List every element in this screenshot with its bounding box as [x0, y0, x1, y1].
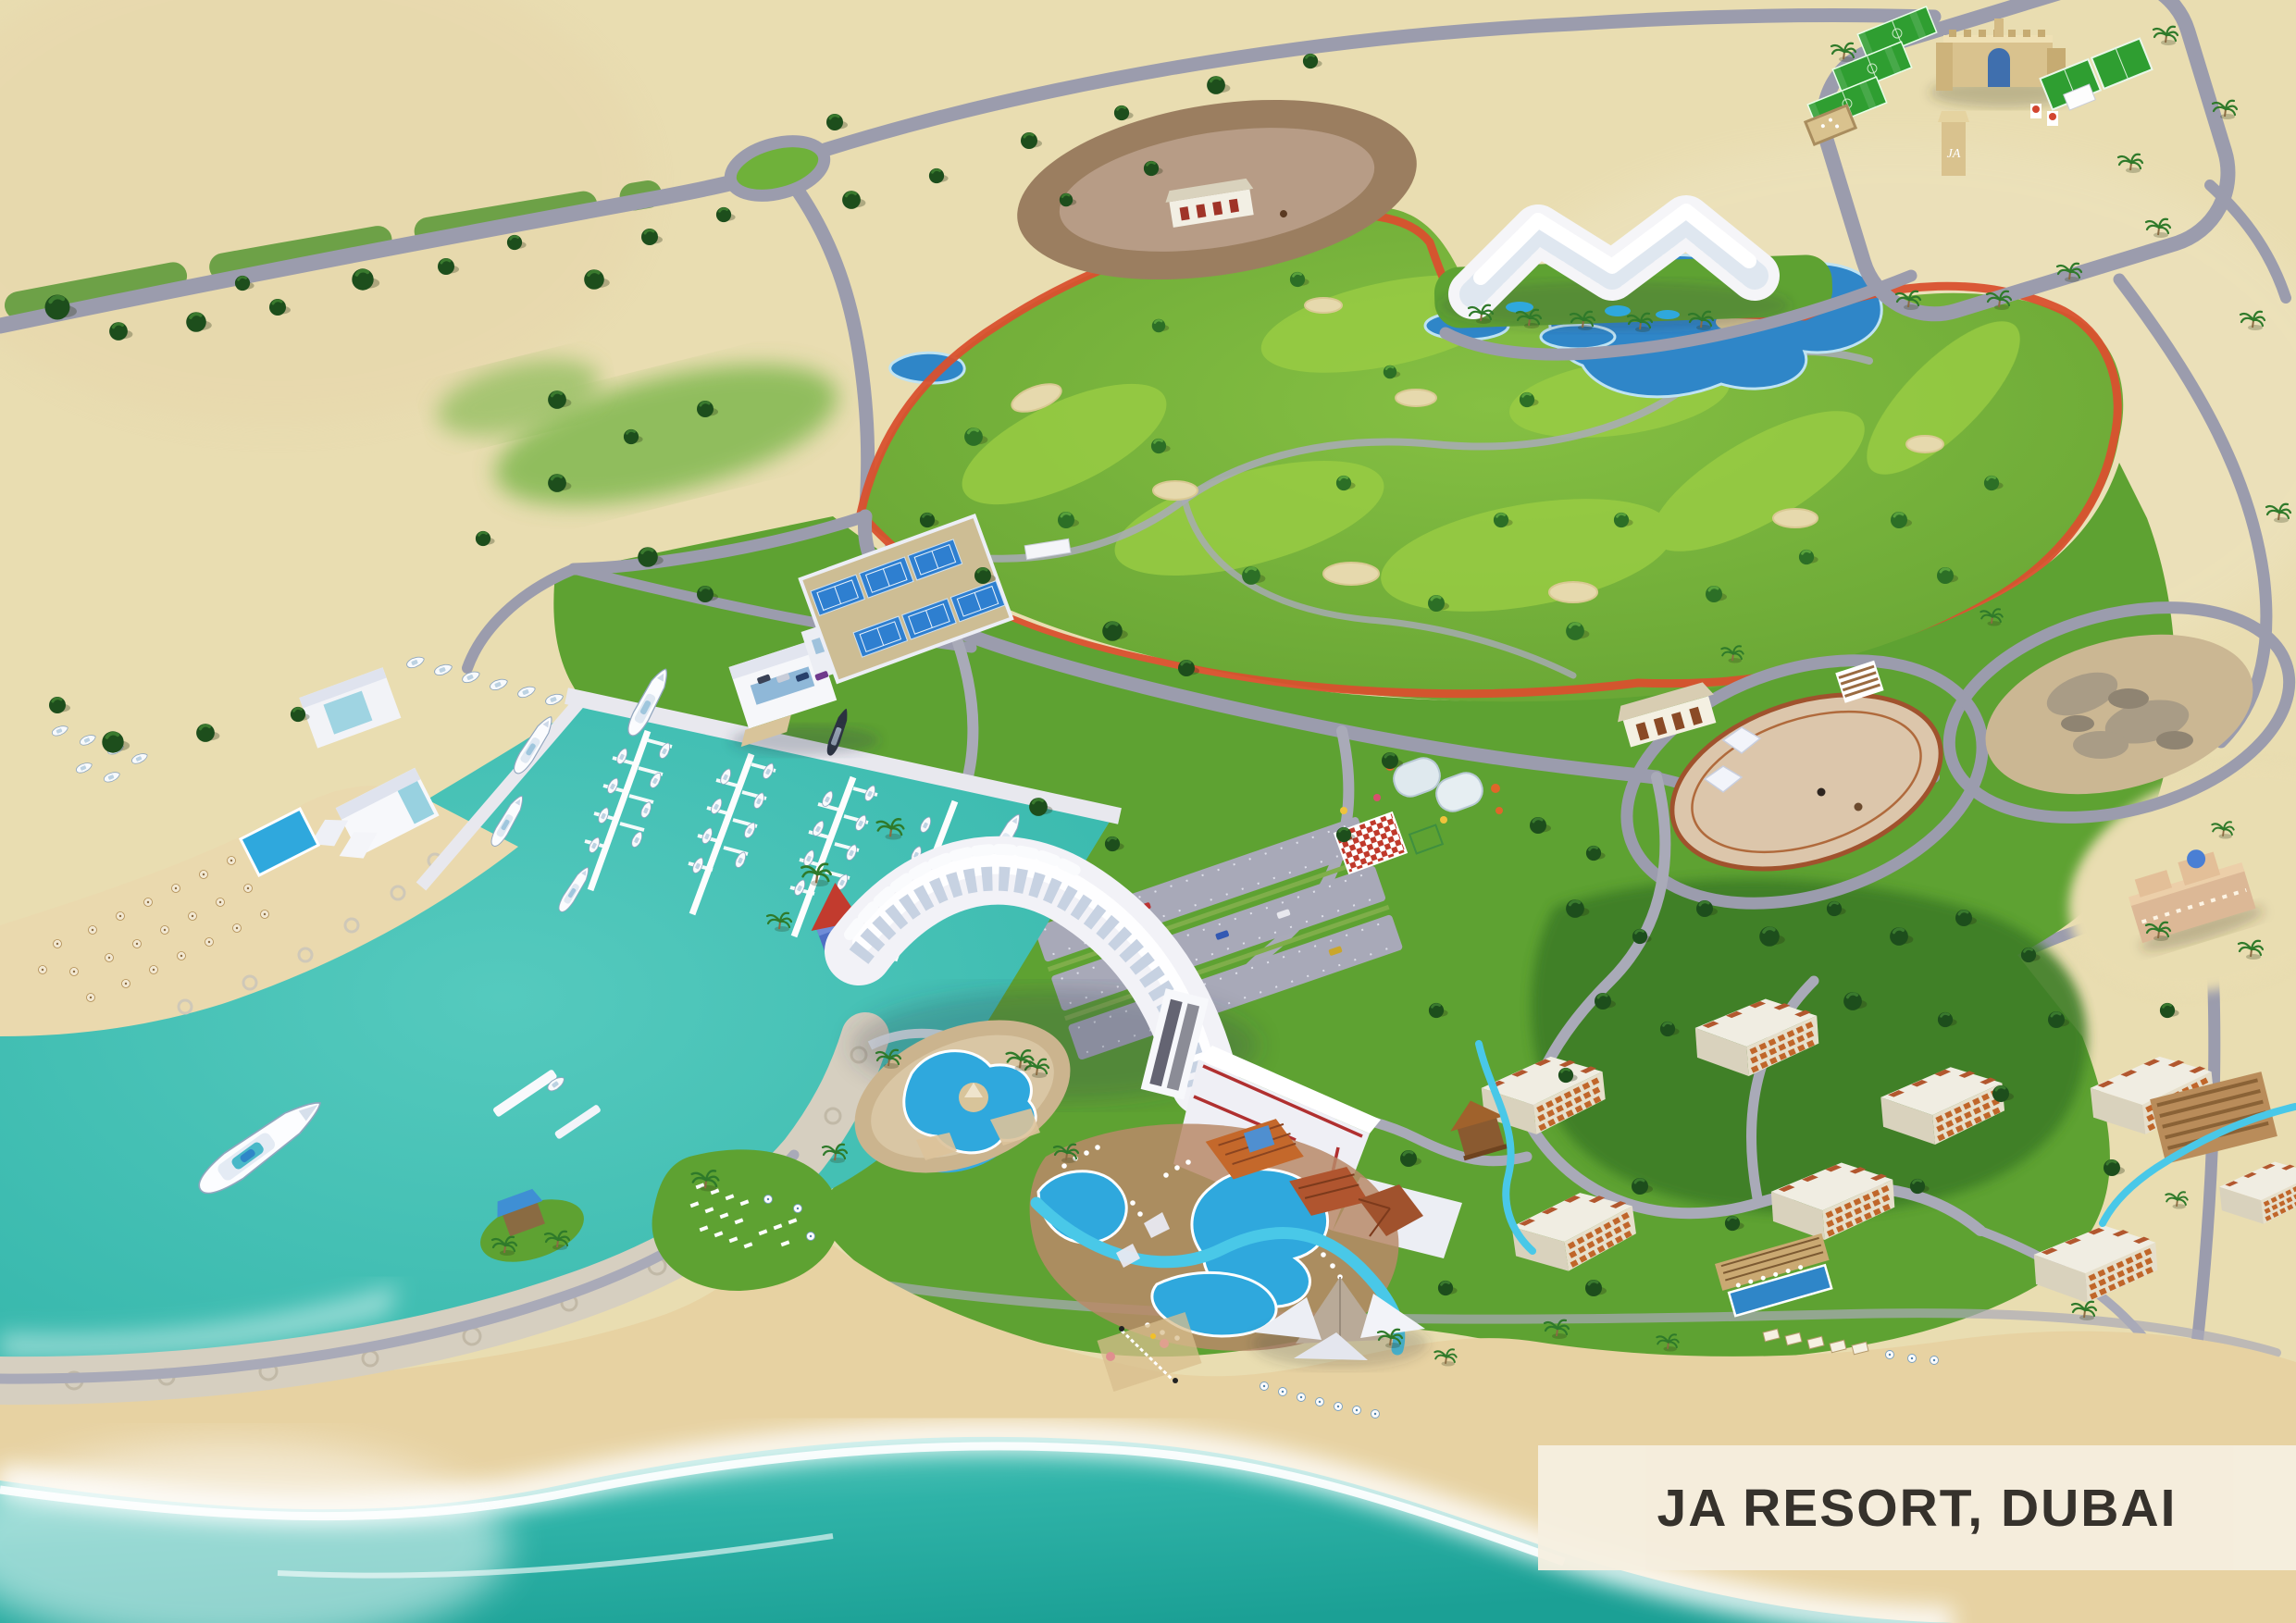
map-title-panel: JA RESORT, DUBAI	[1538, 1445, 2296, 1570]
map-canvas: JA	[0, 0, 2296, 1623]
watchtower: JA	[1938, 111, 1969, 176]
resort-map: JA	[0, 0, 2296, 1623]
map-title: JA RESORT, DUBAI	[1657, 1478, 2178, 1539]
tower-monogram: JA	[1947, 147, 1961, 161]
